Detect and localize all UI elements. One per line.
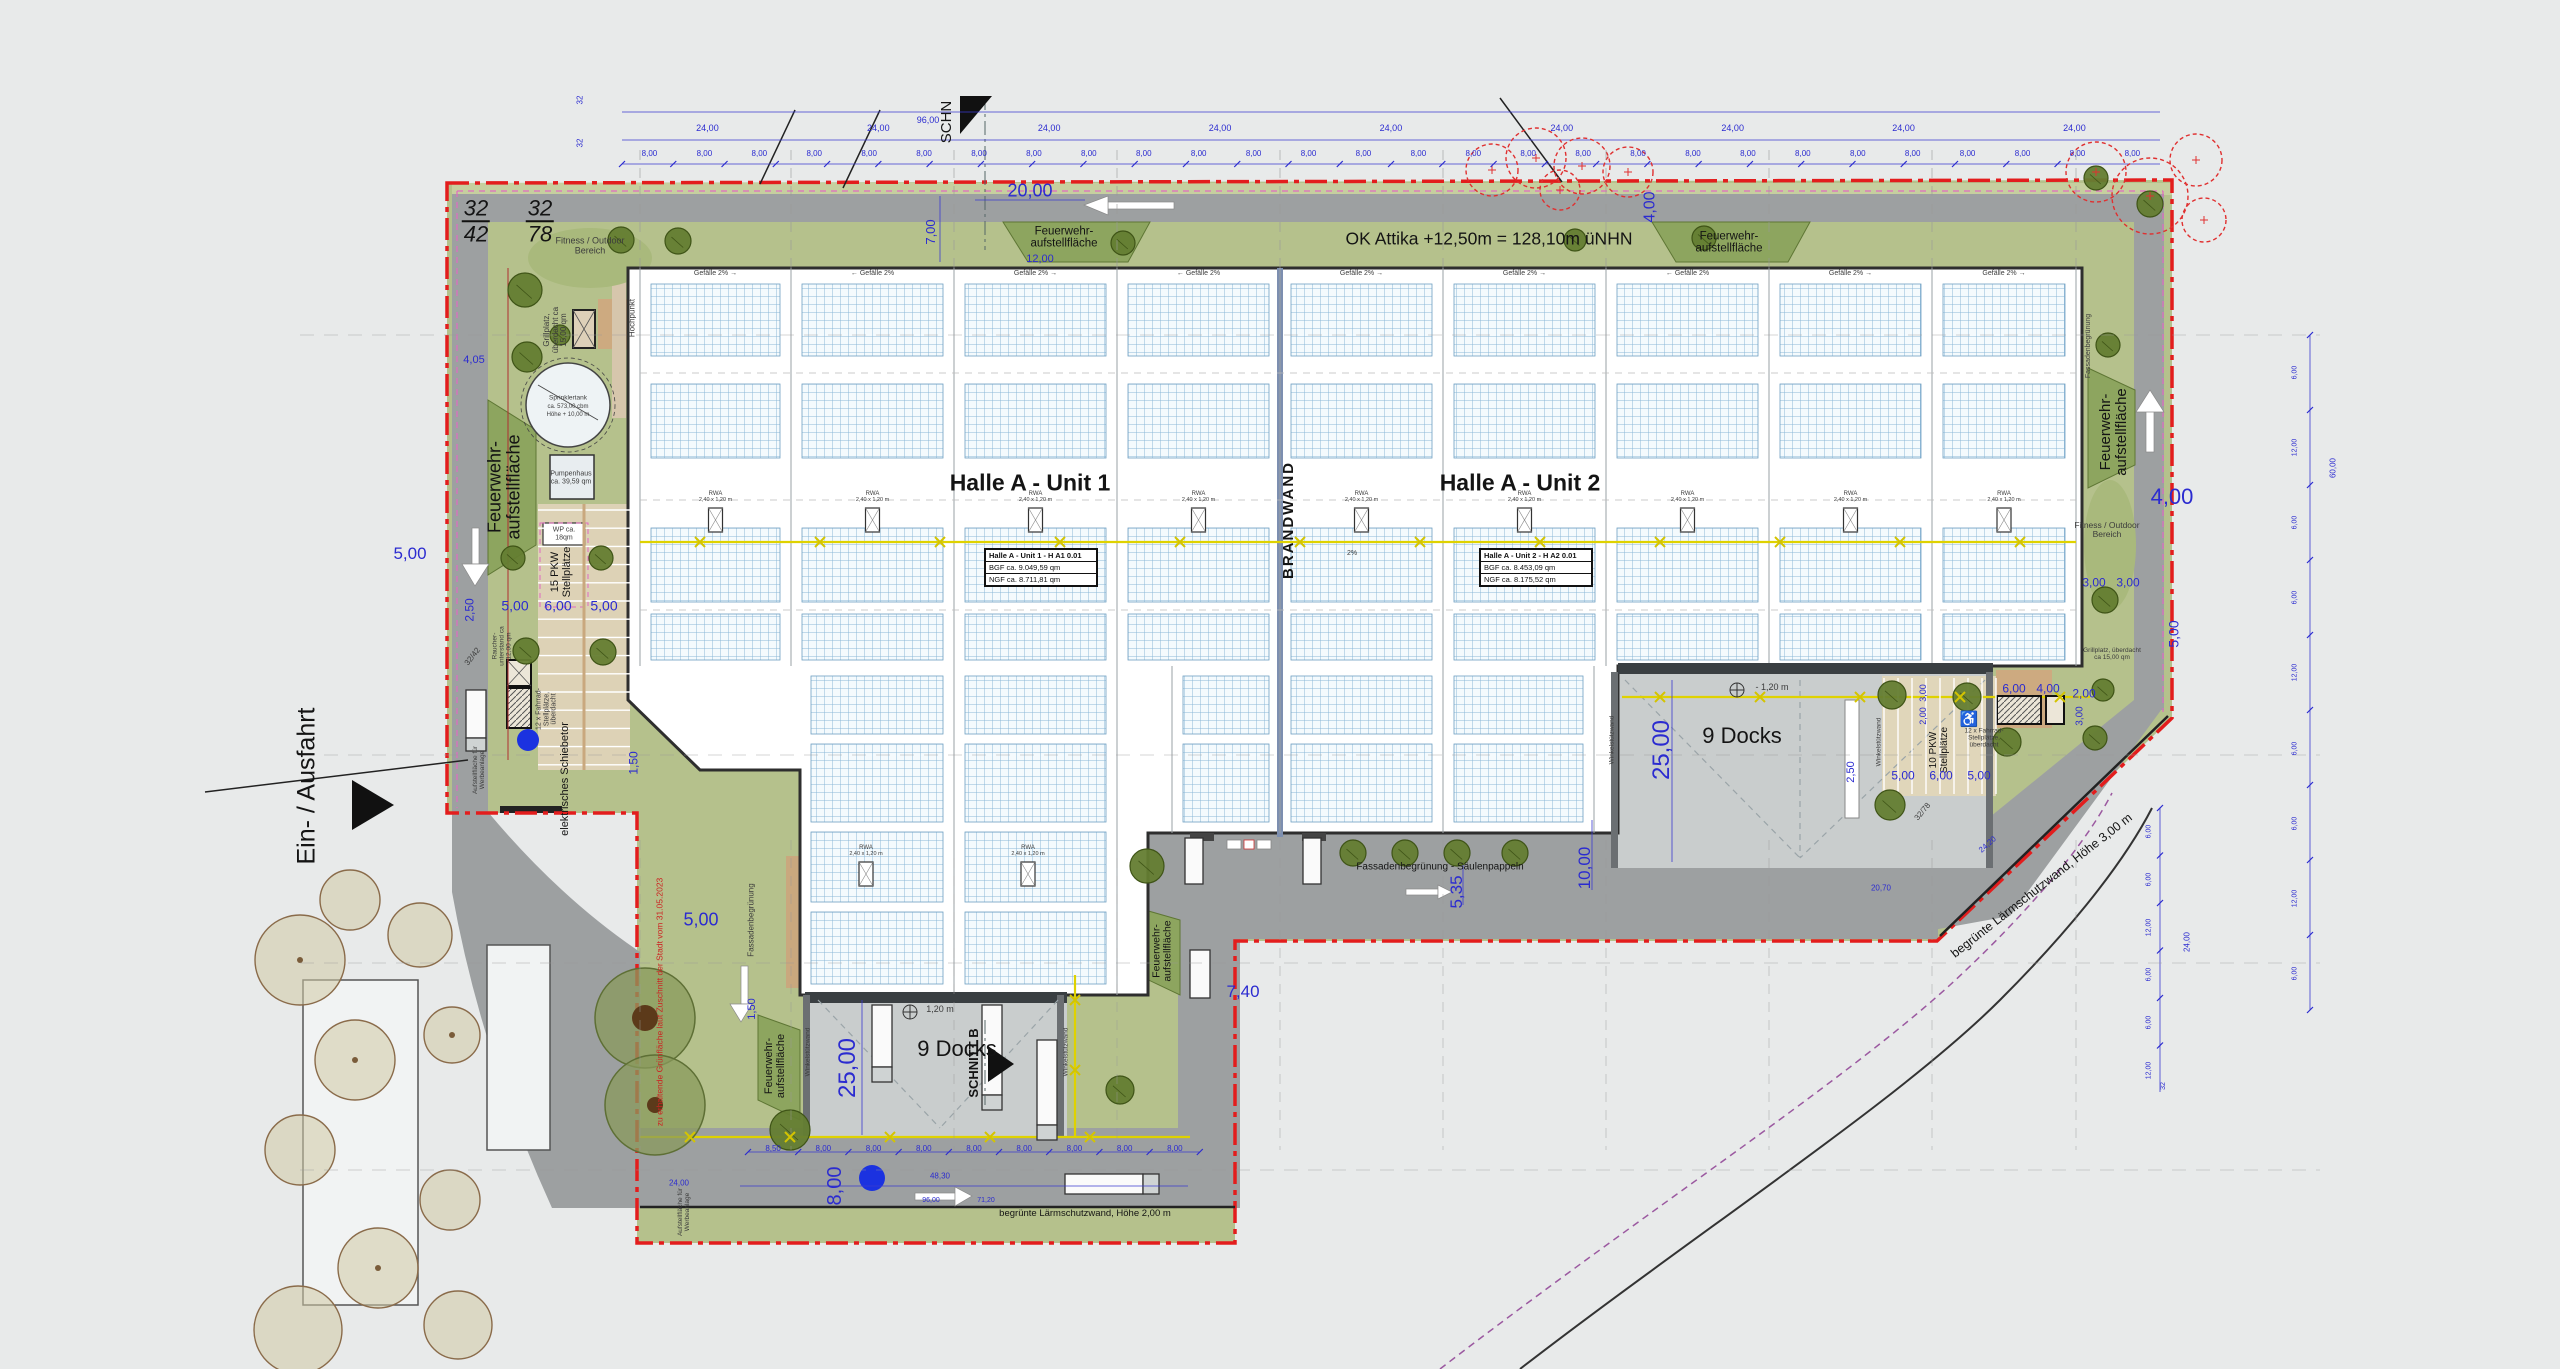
hydrant-south	[859, 1165, 885, 1191]
dim-chain-item: 24,00	[867, 123, 890, 133]
pump-house-label: Pumpenhaus ca. 39,59 qm	[545, 470, 597, 485]
dim-chain-item: 8,00	[1575, 149, 1591, 158]
dim-chain-item: 6,00	[2146, 1016, 2153, 1030]
dim-chain-south: 8,508,008,008,008,008,008,008,008,00	[748, 1142, 1200, 1154]
dim-chain-item: 8,00	[1016, 1144, 1032, 1153]
roof-slope-label: ← Gefälle 2%	[1666, 270, 1709, 278]
rwa-size-label: 2,40 x 1,20 m	[1834, 498, 1867, 504]
dim-5-edge: 5,00	[2166, 620, 2181, 647]
rwa-size-label: 2,40 x 1,20 m	[699, 498, 732, 504]
dim-7: 7,00	[924, 219, 938, 244]
billboard-label-west: Aufstellfläche für Werbeanlage	[472, 745, 486, 795]
fitness-label-east: Fitness / Outdoor Bereich	[2069, 521, 2145, 539]
dim-32a: 32	[577, 96, 586, 105]
dim-chain-item: 24,00	[1038, 123, 1061, 133]
fire-zone-label-east: Feuerwehr- aufstellfläche	[2098, 380, 2130, 484]
dim-5-boundary: 5,00	[393, 545, 426, 563]
dim-4-05: 4,05	[463, 355, 484, 367]
grill-label-east: Grillplatz, überdacht ca 15,00 qm	[2083, 647, 2141, 661]
dim-chain-item: 8,00	[1630, 149, 1646, 158]
rwa-size-label: 2,40 x 1,20 m	[1345, 498, 1378, 504]
dim-32-se: 32	[2160, 1082, 2168, 1090]
dim-chain-item: 12,00	[2146, 918, 2153, 936]
dim-chain-item: 8,00	[1905, 149, 1921, 158]
dim-chain-item: 6,00	[2146, 825, 2153, 839]
dim-chain-item: 6,00	[2146, 873, 2153, 887]
dim-chain-item: 8,00	[2070, 149, 2086, 158]
unit1-area-table: Halle A - Unit 1 - H A1 0.01BGF ca. 9.04…	[984, 548, 1098, 587]
bike-label-east: 12 x Fahrrad- Stellplätze, überdacht	[1956, 727, 2012, 748]
dim-25-east: 25,00	[1649, 720, 1675, 780]
dim-chain-item: 8,00	[697, 149, 713, 158]
dim-2-5-west: 2,50	[464, 598, 477, 621]
fitness-label-west: Fitness / Outdoor Bereich	[547, 236, 633, 255]
docks-label-south: 9 Docks	[917, 1037, 996, 1061]
bike-label-west: 12 x Fahrrad- Stellplätze, überdacht	[536, 678, 559, 740]
dim-chain-item: 8,00	[1685, 149, 1701, 158]
dim-chain-item: 8,00	[971, 149, 987, 158]
site-plan-drawing	[0, 0, 2560, 1369]
dim-6-west: 6,00	[544, 598, 571, 613]
fire-zone-label-top1: Feuerwehr- aufstellfläche	[1018, 226, 1110, 251]
dim-3-e3: 3,00	[2076, 706, 2087, 725]
roof-slope-label: Gefälle 2% →	[1829, 270, 1872, 278]
dim-chain-item: 8,00	[1356, 149, 1372, 158]
dim-chain-item: 6,00	[2292, 816, 2299, 830]
dim-8-sw: 8,00	[825, 1167, 847, 1206]
roof-slope-label: Gefälle 2% →	[1503, 270, 1546, 278]
dim-chain-east-upper: 6,0012,006,006,0012,006,006,0012,006,00	[2288, 335, 2302, 1011]
rwa-size-label: 2,40 x 1,20 m	[1508, 498, 1541, 504]
dim-chain-item: 6,00	[2292, 591, 2299, 605]
preserve-green-note: zu erhaltende Grünfläche laut Zuschnitt …	[655, 878, 664, 1127]
roof-slope-label: ← Gefälle 2%	[1177, 270, 1220, 278]
bike-shelter-west	[507, 688, 531, 728]
dim-chain-item: 12,00	[2292, 439, 2299, 457]
facade-label-main: Fassadenbegrünung - Säulenpappeln	[1356, 863, 1523, 874]
bike-shelter-east	[1997, 696, 2041, 724]
dim-3-e1: 3,00	[2082, 577, 2105, 590]
noise-wall-label-south: begrünte Lärmschutzwand, Höhe 2,00 m	[999, 1209, 1171, 1219]
dim-10: 10,00	[1576, 847, 1594, 890]
dim-chain-item: 8,00	[1026, 149, 1042, 158]
roof-slope-label: Gefälle 2% →	[1982, 270, 2025, 278]
dim-chain-item: 8,00	[806, 149, 822, 158]
dim-20-7: 20,70	[1871, 885, 1891, 894]
dim-5-sw: 5,00	[683, 910, 718, 929]
dim-chain-item: 6,00	[2292, 516, 2299, 530]
dim-6-east: 6,00	[1929, 770, 1952, 783]
dim-71-2: 71,20	[977, 1197, 995, 1205]
dim-25-south: 25,00	[835, 1038, 861, 1098]
dim-chain-item: 6,00	[2292, 967, 2299, 981]
sprinkler-label-2: ca. 573,00 cbm	[547, 404, 588, 410]
rwa-size-label: 2,40 x 1,20 m	[1182, 498, 1215, 504]
dim-7-4: 7,40	[1226, 983, 1259, 1001]
dim-60: 60,00	[2330, 458, 2339, 478]
dim-5-west: 5,00	[501, 598, 528, 613]
dim-5-east2: 5,00	[1967, 770, 1990, 783]
dim-2-e: 2,00	[2072, 688, 2095, 701]
wheelchair-icon: ♿	[1960, 712, 1979, 728]
dim-chain-item: 8,50	[765, 1144, 781, 1153]
highpoint-label: Hochpunkt	[629, 299, 638, 337]
plot-ratio-a: 3242	[462, 196, 490, 246]
dim-chain-item: 12,00	[2292, 890, 2299, 908]
dim-chain-item: 24,00	[1721, 123, 1744, 133]
dim-1-2-east: - 1,20 m	[1755, 683, 1788, 693]
dim-1-2-south: 1,20 m	[926, 1005, 954, 1015]
gate-label: elektrisches Schiebetor	[560, 722, 572, 836]
wall-label-2: Winkelstützwand	[1062, 1028, 1069, 1077]
dim-chain-item: 6,00	[2146, 968, 2153, 982]
dim-chain-item: 8,00	[866, 1144, 882, 1153]
unit2-area-table: Halle A - Unit 2 - H A2 0.01BGF ca. 8.45…	[1479, 548, 1593, 587]
dim-chain-item: 8,00	[816, 1144, 832, 1153]
dim-chain-item: 8,00	[1850, 149, 1866, 158]
slope-2pct-1: 2%	[1347, 550, 1357, 558]
dim-96-south: 96,00	[922, 1197, 940, 1205]
dim-chain-item: 24,00	[1892, 123, 1915, 133]
dim-chain-item: 8,00	[1960, 149, 1976, 158]
dim-chain-item: 8,00	[1795, 149, 1811, 158]
dim-2-east: 2,00	[1919, 707, 1929, 725]
rwa-size-label: 2,40 x 1,20 m	[849, 852, 882, 858]
rwa-size-label: 2,40 x 1,20 m	[1671, 498, 1704, 504]
wall-label-1: Winkelstützwand	[804, 1028, 811, 1077]
dim-3-east: 3,00	[1919, 684, 1929, 702]
dim-chain-item: 8,00	[1191, 149, 1207, 158]
dim-chain-item: 8,00	[1246, 149, 1262, 158]
dim-4-edge: 4,00	[2151, 485, 2194, 509]
dim-1-5-sw: 1,50	[747, 998, 759, 1019]
smoking-label-west: Raucher- unterstand ca 12,00 qm	[491, 620, 512, 672]
firewall-label: BRANDWAND	[1281, 461, 1297, 579]
attika-note: OK Attika +12,50m = 128,10m üNHN	[1346, 230, 1633, 249]
dim-chain-item: 24,00	[1380, 123, 1403, 133]
dim-chain-item: 12,00	[2146, 1061, 2153, 1079]
dim-chain-24m: 24,0024,0024,0024,0024,0024,0024,0024,00…	[622, 122, 2160, 134]
dim-3-e2: 3,00	[2116, 577, 2139, 590]
dim-chain-item: 8,00	[1117, 1144, 1133, 1153]
site-plan: 3242 3278 SCHN 96,00 32 32 20,00 4,00 7,…	[0, 0, 2560, 1369]
dim-chain-item: 6,00	[2292, 366, 2299, 380]
dim-chain-item: 8,00	[1466, 149, 1482, 158]
dim-48-3: 48,30	[930, 1173, 950, 1182]
dim-4-ne: 4,00	[2036, 683, 2059, 696]
dim-chain-item: 24,00	[1551, 123, 1574, 133]
dim-chain-east-lower: 6,006,0012,006,006,0012,00	[2142, 808, 2156, 1094]
dim-5-west2: 5,00	[590, 598, 617, 613]
dim-chain-item: 8,00	[752, 149, 768, 158]
dim-chain-item: 24,00	[696, 123, 719, 133]
fire-zone-label-center: Feuerwehr- aufstellfläche	[1152, 907, 1175, 995]
rwa-size-label: 2,40 x 1,20 m	[1019, 498, 1052, 504]
dim-chain-8m: 8,008,008,008,008,008,008,008,008,008,00…	[622, 147, 2160, 159]
dim-chain-item: 6,00	[2292, 741, 2299, 755]
billboard-label-south: Aufstellfläche für Werbeanlage	[677, 1187, 691, 1237]
dim-chain-item: 8,00	[1167, 1144, 1183, 1153]
dim-chain-item: 8,00	[1301, 149, 1317, 158]
dim-chain-item: 8,00	[916, 149, 932, 158]
entrance-label: Ein- / Ausfahrt	[294, 707, 321, 864]
fire-zone-label-west: Feuerwehr- aufstellfläche	[486, 422, 525, 552]
dim-12-top: 12,00	[1026, 254, 1054, 266]
dim-chain-item: 8,00	[2015, 149, 2031, 158]
wall-label-3: Winkelstützwand	[1608, 716, 1615, 765]
dim-chain-item: 24,00	[1209, 123, 1232, 133]
dim-6-ne: 6,00	[2002, 683, 2025, 696]
dim-chain-item: 12,00	[2292, 664, 2299, 682]
dim-chain-item: 8,00	[1520, 149, 1536, 158]
facade-label-east: Fassadenbegrünung	[2085, 314, 2093, 378]
fire-zone-label-sw: Feuerwehr- aufstellfläche	[764, 1020, 788, 1112]
facade-label-sw: Fassadenbegrünung	[748, 883, 757, 956]
dim-chain-item: 8,00	[2125, 149, 2141, 158]
fire-zone-label-top2: Feuerwehr- aufstellfläche	[1683, 231, 1775, 256]
dim-chain-item: 24,00	[2063, 123, 2086, 133]
dim-5-east: 5,00	[1891, 770, 1914, 783]
dim-32b: 32	[577, 139, 586, 148]
rwa-size-label: 2,40 x 1,20 m	[1987, 498, 2020, 504]
wall-label-4: Winkelstützwand	[1875, 718, 1882, 767]
dim-5-35: 5,35	[1448, 875, 1466, 908]
dim-chain-item: 8,00	[1081, 149, 1097, 158]
dim-chain-item: 8,00	[861, 149, 877, 158]
dim-24-se: 24,00	[2184, 932, 2193, 952]
sprinkler-label-1: Sprinklertank	[549, 394, 587, 401]
dim-chain-item: 8,00	[1067, 1144, 1083, 1153]
neighbor-building-2	[487, 945, 550, 1150]
dim-chain-item: 8,00	[916, 1144, 932, 1153]
docks-label-east: 9 Docks	[1702, 724, 1781, 748]
dim-chain-item: 8,00	[1411, 149, 1427, 158]
dim-20: 20,00	[1007, 181, 1052, 200]
dim-chain-item: 8,00	[642, 149, 658, 158]
dim-1-5-west: 1,50	[628, 751, 641, 774]
dim-4-top: 4,00	[1641, 191, 1658, 222]
roof-slope-label: Gefälle 2% →	[1014, 270, 1057, 278]
dim-2-5-east: 2,50	[1846, 761, 1858, 782]
section-b-label: SCHNITT B	[967, 1028, 981, 1097]
dim-chain-item: 8,00	[966, 1144, 982, 1153]
roof-slope-label: ← Gefälle 2%	[851, 270, 894, 278]
rwa-size-label: 2,40 x 1,20 m	[1011, 852, 1044, 858]
sprinkler-label-3: Höhe + 10,00 m	[547, 412, 590, 418]
rwa-size-label: 2,40 x 1,20 m	[856, 498, 889, 504]
dim-chain-item: 8,00	[1136, 149, 1152, 158]
grill-label-west: Grillplatz, überdacht ca 15,00 qm	[543, 298, 569, 362]
dim-chain-item: 8,00	[1740, 149, 1756, 158]
roof-slope-label: Gefälle 2% →	[694, 270, 737, 278]
roof-slope-label: Gefälle 2% →	[1340, 270, 1383, 278]
